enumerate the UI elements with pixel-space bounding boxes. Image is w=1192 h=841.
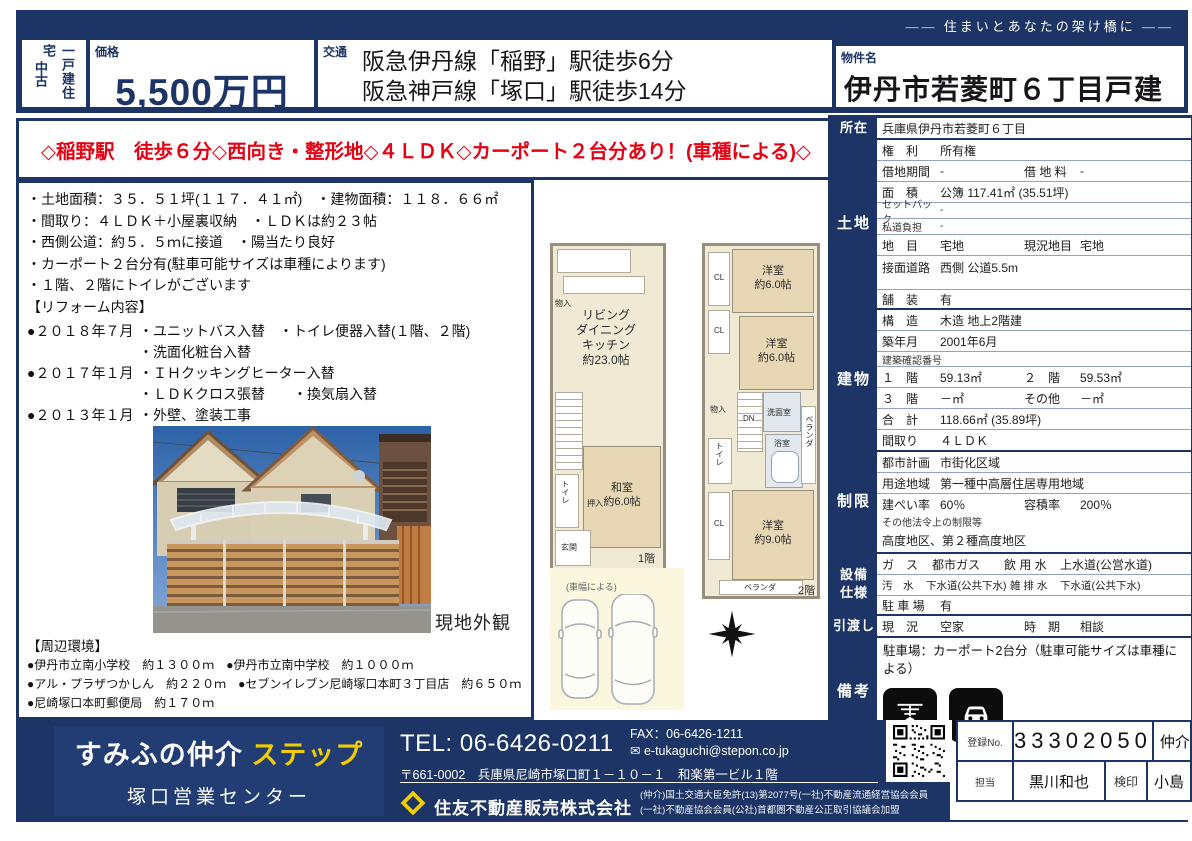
table-row: １ 階59.13㎡２ 階59.53㎡ [877,366,1191,387]
table-row: 現 況空家時 期相談 [877,616,1191,636]
surroundings-line: ●伊丹市立南小学校 約１３００ｍ ●伊丹市立南中学校 約１０００ｍ [27,656,521,675]
table-row: その他法令上の制限等 [877,514,1191,528]
closet-1: CL [708,252,730,306]
room-label-washroom: 洗面室 [767,407,791,418]
table-row: 高度地区、第２種高度地区 [877,528,1191,552]
room-label-genkan: 玄関 [561,542,577,553]
traffic-label: 交通 [323,43,347,60]
property-type-sub: 中古 [31,61,50,87]
room-label-bedroom2: 洋室 約6.0帖 [740,337,813,365]
balcony-side-label: ベランダ [804,415,815,447]
section-building: 建物 構 造木造 地上2階建 築年月2001年6月 建築確認番号 １ 階59.1… [831,308,1191,450]
section-label: 制限 [831,452,877,552]
bedroom-2: 洋室 約6.0帖 [739,316,814,390]
email-line: ✉ e-tukaguchi@stepon.co.jp [630,743,789,760]
note-line: ・カーポート２台分有(駐車可能サイズは車種によります) [27,254,498,276]
reform-row: ●２０１３年１月・外壁、塗装工事 [27,405,470,426]
balcony-side: ベランダ [801,406,816,484]
field-value: 兵庫県伊丹市若菱町６丁目 [882,120,1186,137]
table-row: ３ 階－㎡その他－㎡ [877,387,1191,408]
table-row: 間取り４ＬＤＫ [877,429,1191,450]
section-land: 土地 権 利所有権 借地期間-借 地 料- 面 積公簿 117.41㎡ (35.… [831,138,1191,308]
table-row: 建ぺい率60％容積率200％ [877,493,1191,514]
reform-list: ●２０１８年７月・ユニットバス入替 ・トイレ便器入替(１階、２階) ・洗面化粧台… [27,321,470,426]
table-row: 権 利所有権 [877,140,1191,160]
balcony-bottom-label: ベランダ [744,582,776,593]
traffic-line-1: 阪急伊丹線「稲野」駅徒歩6分 [362,46,687,76]
note-line: ・土地面積：３５．５１坪(１１７．４１㎡) ・建物面積：１１８．６６㎡ [27,189,498,211]
table-row: 汚 水下水道(公共下水)雑 排 水下水道(公共下水) [877,574,1191,595]
table-row: 合 計118.66㎡ (35.89坪) [877,408,1191,429]
room-label-monoire-2f: 物入 [710,404,726,415]
note-line: ・西側公道：約５．５ｍに接道 ・陽当たり良好 [27,232,498,254]
table-row: 舗 装有 [877,289,1191,308]
property-notes: ・土地面積：３５．５１坪(１１７．４１㎡) ・建物面積：１１８．６６㎡ ・間取り… [27,189,498,318]
surroundings-line: ●アル・プラザつかしん 約２２０ｍ ●セブンイレブン尼崎塚口本町３丁目店 約６５… [27,675,521,694]
washitsu-room: 和室 約6.0帖 [583,446,661,548]
table-row: 用途地域第一種中高層住居専用地域 [877,472,1191,493]
room-label-oshiire: 押入 [587,498,603,509]
reg-type: 仲介 [1152,722,1192,760]
closet-label: CL [714,519,724,528]
genkan: 玄関 [555,530,591,566]
real-estate-flyer: ―― 住まいとあなたの架け橋に ―― 一戸建住宅 中古 価格 5,500万円 交… [0,0,1192,841]
property-name: 伊丹市若菱町６丁目戸建 [844,68,1163,108]
compass-icon [706,608,758,660]
spec-table: 所在 兵庫県伊丹市若菱町６丁目 土地 権 利所有権 借地期間-借 地 料- 面 … [828,115,1192,725]
section-label: 設備 仕様 [831,554,877,614]
table-row: 都市計画市街化区域 [877,452,1191,472]
office-address: 〒661-0002 兵庫県尼崎市塚口町１－１０－１ 和楽第一ビル１階 [400,764,778,783]
stairs-dn-label: DN [743,414,755,423]
registration-row: 登録No. 33302050 仲介 [958,722,1190,760]
closet-label: CL [714,326,724,335]
section-label: 土地 [831,140,877,308]
table-row: 接面道路西側 公道5.5m [877,255,1191,289]
property-type-tab: 一戸建住宅 中古 [22,40,86,107]
exterior-photo-graphic [153,426,431,633]
section-label: 建物 [831,310,877,450]
table-row: ガ ス都市ガス飲 用 水上水道(公営水道) [877,554,1191,574]
bedroom-3: 洋室 約9.0帖 [732,490,814,580]
bedroom-1: 洋室 約6.0帖 [732,249,814,313]
sumitomo-igeta-logo [400,790,426,816]
cars-sketch [558,594,668,706]
stairs-1f [555,392,583,470]
room-label-bedroom1: 洋室 約6.0帖 [733,264,813,292]
registration-table: 登録No. 33302050 仲介 担当 黒川和也 検印 小島 [956,720,1192,802]
company-name: 住友不動産販売株式会社 [434,794,632,819]
room-label-ldk: リビング ダイニング キッチン 約23.0帖 [557,308,655,368]
room-label-toilet-1f: トイレ [560,480,571,504]
balcony-bottom: ベランダ [719,580,803,595]
floorplan-1f: 物入 リビング ダイニング キッチン 約23.0帖 トイレ 和室 約6.0帖 押… [550,243,666,571]
car-note: (車幅による) [566,580,617,593]
agency-brand: すみふの仲介 ステップ [75,733,364,772]
section-label: 引渡し [831,616,877,636]
reg-no-value: 33302050 [1012,722,1152,760]
section-facilities: 設備 仕様 ガ ス都市ガス飲 用 水上水道(公営水道) 汚 水下水道(公共下水)… [831,552,1191,614]
reform-title: 【リフォーム内容】 [27,297,498,319]
washroom: 洗面室 [763,392,801,432]
reg-no-label: 登録No. [958,722,1012,760]
office-name: 塚口営業センター [127,782,311,809]
surroundings-title: 【周辺環境】 [27,637,521,656]
table-row: 建築確認番号 [877,351,1191,366]
license-text: (仲介)国土交通大臣免許(13)第2077号(一社)不動産流通経営協会会員 (一… [640,788,928,818]
price-value: 5,500万円 [90,62,314,116]
qr-code [886,720,952,782]
exterior-photo [153,426,431,633]
kitchen-counter [557,249,631,273]
room-label-bedroom3: 洋室 約9.0帖 [733,519,813,547]
section-label: 所在 [831,118,877,138]
section-handover: 引渡し 現 況空家時 期相談 [831,614,1191,636]
floorplan-2f: CL 洋室 約6.0帖 CL 洋室 約6.0帖 DN 物入 トイレ 洗面室 浴室… [702,243,820,599]
fax-email-block: FAX：06-6426-1211 ✉ e-tukaguchi@stepon.co… [630,726,789,760]
catch-copy: ◇稲野駅 徒歩６分◇西向き・整形地◇４ＬＤＫ◇カーポート２台分あり！(車種による… [16,118,836,180]
floor-number-1f: 1階 [638,550,655,566]
room-label-toilet-2f: トイレ [714,442,725,466]
table-row: 駐 車 場有 [877,595,1191,614]
table-row: 地 目宅地現況地目宅地 [877,234,1191,255]
closet-2: CL [708,310,730,354]
staff-label: 担当 [958,762,1012,800]
agency-logo-block: すみふの仲介 ステップ 塚口営業センター [54,726,384,816]
parking-area: (車幅による) [550,568,684,710]
qr-code-graphic [893,725,945,777]
surroundings: 【周辺環境】 ●伊丹市立南小学校 約１３００ｍ ●伊丹市立南中学校 約１０００ｍ… [27,637,521,713]
table-row: 築年月2001年6月 [877,330,1191,351]
traffic-cell: 交通 阪急伊丹線「稲野」駅徒歩6分 阪急神戸線「塚口」駅徒歩14分 [318,40,832,107]
table-row: 借地期間-借 地 料- [877,160,1191,181]
closet-3: CL [708,492,730,560]
room-label-bath: 浴室 [774,438,790,449]
price-cell: 価格 5,500万円 [90,40,314,107]
floor-number-2f: 2階 [798,582,815,598]
footer-divider [400,782,878,783]
staff-row: 担当 黒川和也 検印 小島 [958,760,1190,800]
section-location: 所在 兵庫県伊丹市若菱町６丁目 [831,118,1191,138]
footer-band: すみふの仲介 ステップ 塚口営業センター TEL: 06-6426-0211 F… [16,720,950,822]
bottom-rule [950,820,1188,822]
note-line: ・間取り：４ＬＤＫ＋小屋裏収納 ・ＬＤＫは約２３帖 [27,211,498,233]
seal-label: 検印 [1104,762,1146,800]
traffic-lines: 阪急伊丹線「稲野」駅徒歩6分 阪急神戸線「塚口」駅徒歩14分 [362,46,687,106]
table-row: 構 造木造 地上2階建 [877,310,1191,330]
section-restrictions: 制限 都市計画市街化区域 用途地域第一種中高層住居専用地域 建ぺい率60％容積率… [831,450,1191,552]
table-row: 兵庫県伊丹市若菱町６丁目 [877,118,1191,138]
reform-row: ●２０１７年１月・ＩＨクッキングヒーター入替 [27,363,470,384]
brand-tagline: ―― 住まいとあなたの架け橋に ―― [905,16,1174,35]
phone-number: TEL: 06-6426-0211 [400,730,614,758]
bathroom: 浴室 [765,434,803,488]
envelope-icon: ✉ [630,744,644,758]
reform-row: ・洗面化粧台入替 [27,342,470,363]
surroundings-line: ●尼崎塚口本町郵便局 約１７０ｍ [27,694,521,713]
price-label: 価格 [95,43,119,60]
description-box: ・土地面積：３５．５１坪(１１７．４１㎡) ・建物面積：１１８．６６㎡ ・間取り… [16,180,534,720]
photo-caption: 現地外観 [435,609,511,635]
reform-row: ・ＬＤＫクロス張替 ・換気扇入替 [27,384,470,405]
header-band: ―― 住まいとあなたの架け橋に ―― 一戸建住宅 中古 価格 5,500万円 交… [16,10,1188,113]
remarks-text: 駐車場：カーポート2台分（駐車可能サイズは車種による） [883,642,1185,678]
email-address: e-tukaguchi@stepon.co.jp [644,744,789,758]
closet-label: CL [714,273,724,282]
property-name-cell: 物件名 伊丹市若菱町６丁目戸建 [836,46,1184,107]
reform-row: ●２０１８年７月・ユニットバス入替 ・トイレ便器入替(１階、２階) [27,321,470,342]
property-name-label: 物件名 [841,49,877,66]
staff-name: 黒川和也 [1012,762,1104,800]
fax-number: FAX：06-6426-1211 [630,726,789,743]
note-line: ・１階、２階にトイレがございます [27,275,498,297]
traffic-line-2: 阪急神戸線「塚口」駅徒歩14分 [362,76,687,106]
table-row: 私道負担- [877,218,1191,234]
table-row: セットバック- [877,202,1191,218]
seal-name: 小島 [1146,762,1190,800]
kitchen-island [563,276,645,294]
